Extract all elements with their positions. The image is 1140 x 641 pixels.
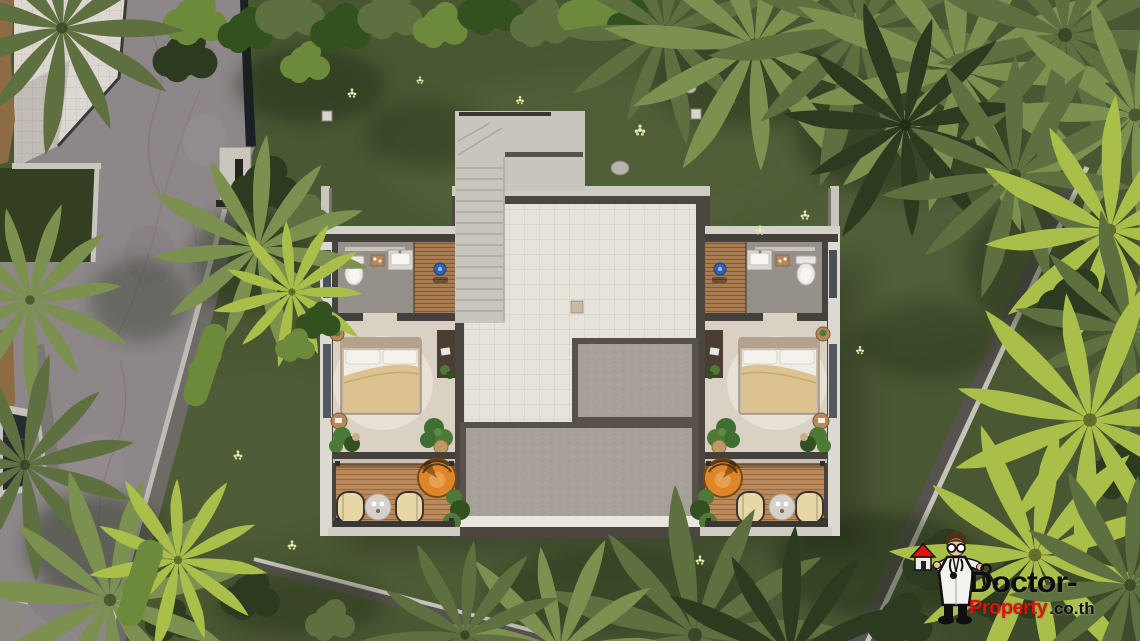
lounger-west (337, 492, 364, 523)
shower-deck (413, 242, 455, 316)
south-parapet (456, 516, 702, 527)
cosmetics-stool (371, 255, 384, 266)
doorway (363, 313, 397, 322)
flat-roof-upper (575, 341, 695, 420)
brand-domain-suffix: .co.th (1049, 600, 1094, 617)
brand-name-black: Doctor- (969, 568, 1140, 598)
left-villa-unit (320, 186, 470, 536)
bedside-stool-south (331, 413, 347, 429)
bed (341, 338, 421, 414)
deck-table (365, 494, 391, 520)
vanity-sink (388, 250, 413, 270)
bedroom (329, 313, 455, 463)
flat-roof-lower (463, 425, 695, 522)
pillow (346, 350, 380, 364)
right-villa-unit (690, 186, 840, 536)
desk (437, 330, 455, 379)
brand-wordmark: Doctor- Property .co.th (969, 568, 1140, 618)
pillow (383, 350, 417, 364)
north-wall (320, 226, 455, 234)
doctor-property-watermark: Doctor- Property .co.th (903, 527, 1140, 641)
terrace-deck (328, 459, 470, 536)
house-icon (911, 544, 935, 570)
roof-hatch (571, 301, 583, 313)
window-bedroom (323, 344, 331, 418)
south-wall (333, 452, 455, 459)
lounger-east (396, 492, 423, 523)
brand-name-red: Property (969, 598, 1047, 618)
aerial-villa-render: Doctor- Property .co.th (0, 0, 1140, 641)
